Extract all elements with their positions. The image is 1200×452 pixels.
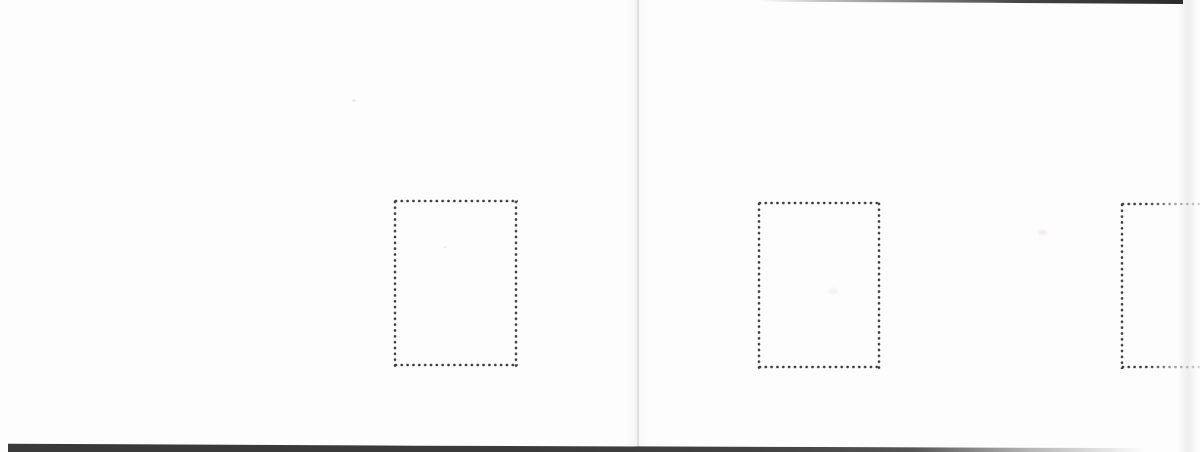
scan-speck: [1038, 230, 1047, 235]
scan-speck: [443, 246, 447, 248]
stamp-mount-frame-2: [757, 201, 881, 369]
page-gutter-line: [637, 0, 639, 452]
left-page: [0, 0, 638, 452]
scanned-album-spread: [0, 0, 1200, 452]
scan-speck: [352, 99, 356, 102]
page-fore-edge-shading: [1178, 0, 1198, 452]
scan-speck: [828, 288, 838, 294]
right-page: [638, 0, 1200, 452]
stamp-mount-frame-1: [393, 199, 518, 367]
